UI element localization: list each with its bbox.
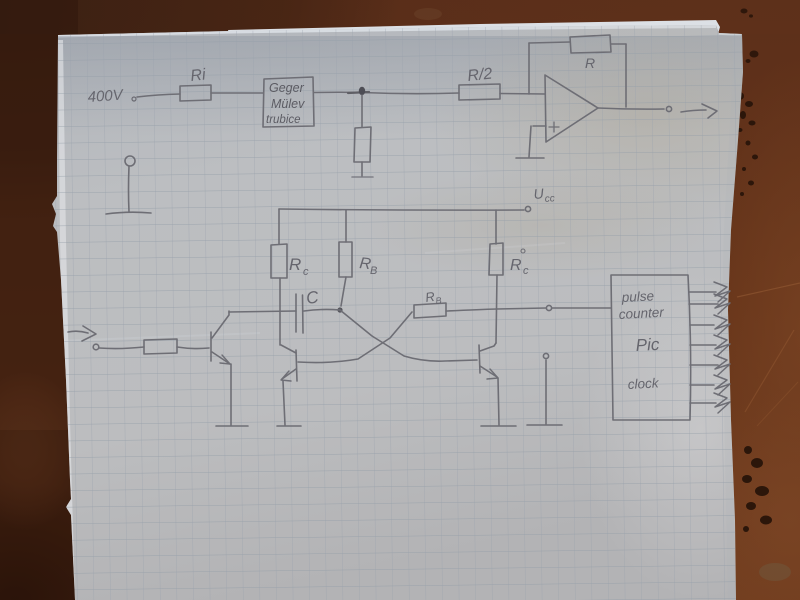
svg-text:R: R — [289, 255, 301, 274]
svg-text:clock: clock — [627, 375, 660, 392]
svg-text:pulse: pulse — [620, 288, 654, 305]
svg-text:Geger: Geger — [269, 81, 305, 95]
svg-text:trubice: trubice — [266, 114, 301, 126]
svg-text:400V: 400V — [87, 86, 125, 106]
svg-text:Rі: Rі — [190, 66, 207, 85]
svg-text:R: R — [510, 257, 522, 274]
svg-text:cc: cc — [544, 193, 555, 205]
svg-text:B: B — [370, 265, 377, 277]
svg-text:Pic: Pic — [635, 335, 660, 355]
svg-text:c: c — [303, 266, 309, 278]
svg-text:c: c — [523, 265, 529, 277]
svg-text:R: R — [585, 55, 595, 71]
svg-text:Mülev: Mülev — [271, 97, 305, 111]
svg-text:R/2: R/2 — [467, 65, 494, 85]
svg-text:counter: counter — [618, 305, 664, 322]
